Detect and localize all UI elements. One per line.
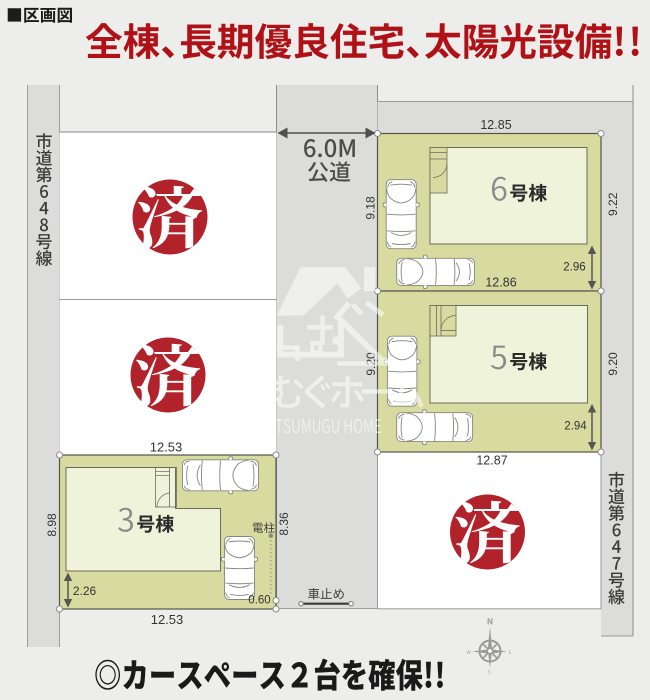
svg-text:0.60: 0.60 [248,595,270,607]
svg-text:12.87: 12.87 [476,454,507,468]
svg-text:2.94: 2.94 [564,421,587,433]
svg-text:2.96: 2.96 [563,262,585,274]
svg-text:8.98: 8.98 [45,513,59,537]
svg-text:9.20: 9.20 [606,352,620,376]
svg-text:2.26: 2.26 [73,584,97,598]
svg-text:12.53: 12.53 [151,612,184,627]
svg-text:8.36: 8.36 [277,512,291,536]
svg-text:12.85: 12.85 [480,118,511,132]
svg-text:12.86: 12.86 [485,276,516,290]
svg-text:12.53: 12.53 [150,440,183,455]
svg-text:9.18: 9.18 [364,196,378,220]
svg-text:9.22: 9.22 [606,192,620,216]
